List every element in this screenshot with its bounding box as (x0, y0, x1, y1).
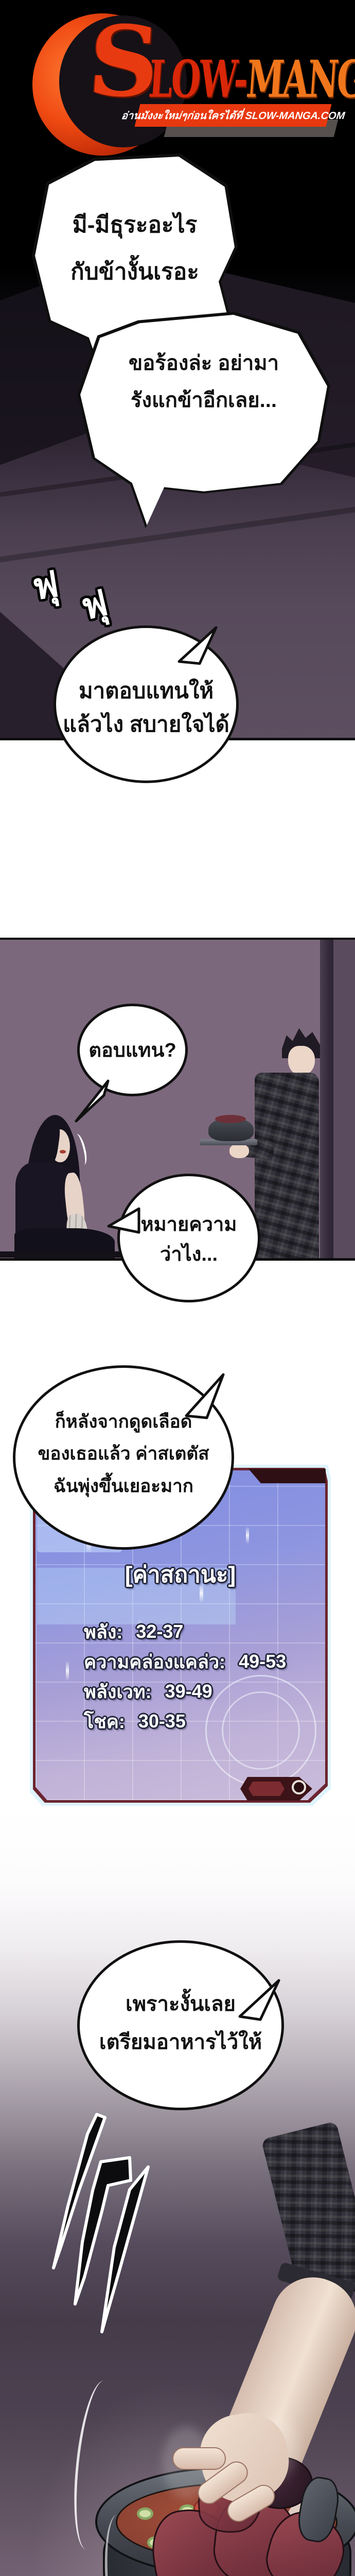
dialogue-text: มี-มีธุระอะไร (32, 207, 238, 243)
status-window-title: [ค่าสถานะ] (30, 1556, 331, 1592)
holo-hex-inner (248, 1782, 285, 1796)
light-streak (246, 1527, 249, 1544)
stat-value: 39-49 (165, 1681, 212, 1702)
dialogue-text: กับข้างั้นเรอะ (32, 253, 238, 290)
stat-value: 30-35 (138, 1710, 186, 1732)
bubble-tail (105, 1205, 141, 1241)
wall-right (333, 940, 355, 1261)
dialogue-text: รังแกข้าอีกเลย... (77, 383, 330, 416)
light-streak (66, 1660, 69, 1681)
dialogue-text: แล้วไง สบายใจได้ (56, 707, 236, 741)
stat-row-power: พลัง:32-37 (84, 1617, 286, 1647)
small-pot-food (215, 1115, 246, 1123)
man-face (288, 1046, 315, 1076)
stat-row-magic: พลังเวท:39-49 (84, 1676, 286, 1706)
man-hand (229, 1144, 249, 1158)
sfx-whoosh-icon (51, 2112, 159, 2334)
dialogue-text: ฉันพุ่งขึ้นเยอะมาก (15, 1472, 232, 1500)
holo-hex-ring (292, 1780, 306, 1794)
scallion-ring (137, 2507, 153, 2520)
dialogue-text: มาตอบแทนให้ (56, 674, 236, 708)
stat-row-luck: โชค:30-35 (84, 1706, 286, 1736)
bubble-tail (71, 1078, 112, 1124)
stat-value: 32-37 (136, 1621, 183, 1642)
speech-bubble-scared-2: ขอร้องล่ะ อย่ามา รังแกข้าอีกเลย... (77, 312, 330, 528)
finger (172, 2447, 226, 2470)
site-logo: S LOW-MANGA อ่านมังงะใหม่ๆก่อนใครได้ที่ … (28, 4, 327, 174)
dialogue-text: เตรียมอาหารไว้ให้ (80, 2025, 281, 2058)
webtoon-page: S LOW-MANGA อ่านมังงะใหม่ๆก่อนใครได้ที่ … (0, 0, 355, 2576)
man-camo-uniform (255, 1073, 319, 1261)
logo-wordmark-orange: MANGA (244, 49, 355, 109)
stat-label: ความคล่องแคล่ว: (84, 1647, 225, 1676)
wall-pillar (320, 940, 333, 1261)
dialogue-text: ขอร้องล่ะ อย่ามา (77, 346, 330, 379)
logo-wordmark-red: LOW- (147, 49, 248, 109)
bubble-tail (175, 624, 221, 666)
dialogue-text: ว่าไง... (120, 1238, 258, 1269)
bubble-tail (236, 1975, 282, 2022)
woman-mouth (60, 1150, 66, 1154)
logo-wordmark: LOW-MANGA (147, 54, 355, 105)
speech-bubble-food: เพราะงั้นเลย เตรียมอาหารไว้ให้ (77, 1940, 284, 2110)
dialogue-text: ตอบแทน? (80, 1034, 185, 1065)
site-tagline-banner: อ่านมังงะใหม่ๆก่อนใครได้ที่ SLOW-MANGA.C… (135, 104, 332, 127)
dialogue-text: ของเธอแล้ว ค่าสเตตัส (15, 1439, 232, 1468)
status-stats-list: พลัง:32-37 ความคล่องแคล่ว:49-53 พลังเวท:… (84, 1617, 286, 1736)
stat-label: โชค: (84, 1707, 125, 1736)
site-tagline: อ่านมังงะใหม่ๆก่อนใครได้ที่ SLOW-MANGA.C… (120, 107, 346, 124)
bubble-tail (181, 1370, 227, 1419)
stat-label: พลังเวท: (84, 1677, 152, 1706)
stat-value: 49-53 (239, 1651, 286, 1672)
holo-corner-accent (248, 1469, 326, 1483)
food-reveal-panel (0, 1806, 355, 2576)
stat-label: พลัง: (84, 1617, 122, 1647)
stat-row-agility: ความคล่องแคล่ว:49-53 (84, 1647, 286, 1676)
